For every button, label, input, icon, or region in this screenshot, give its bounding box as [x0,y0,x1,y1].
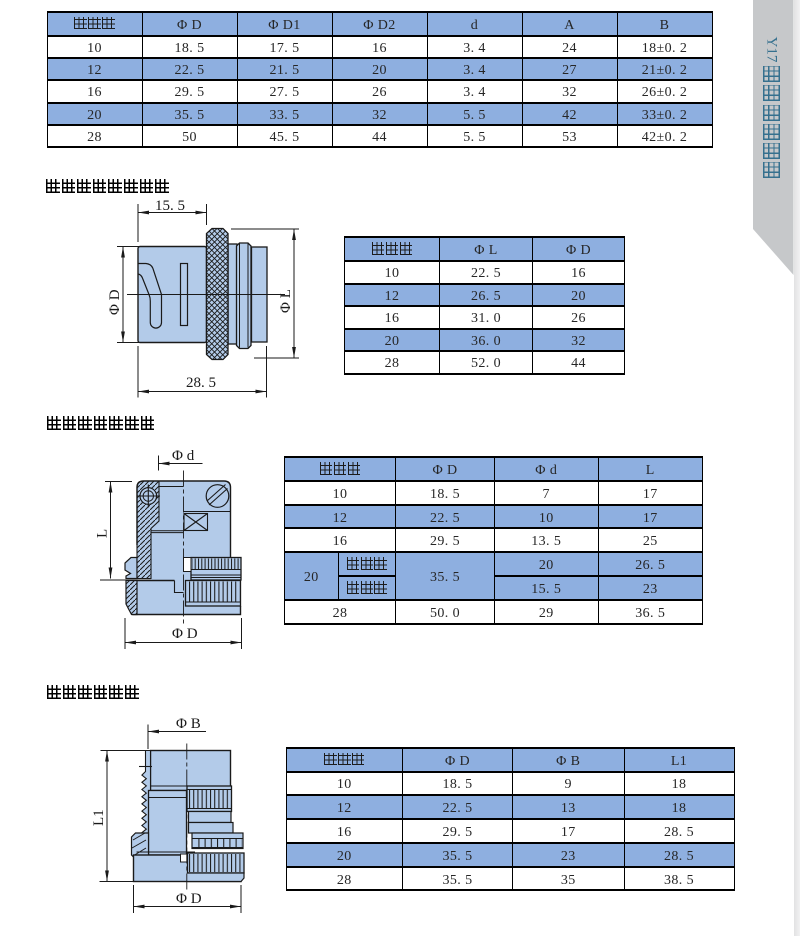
svg-text:Φ D: Φ D [176,891,202,907]
svg-text:Φ L: Φ L [278,289,294,313]
svg-text:Φ D: Φ D [107,289,123,315]
svg-text:28. 5: 28. 5 [186,375,216,391]
svg-text:Φ B: Φ B [176,716,201,732]
svg-text:15. 5: 15. 5 [155,198,185,214]
svg-text:Φ D: Φ D [172,626,198,642]
svg-text:Φ d: Φ d [172,448,195,464]
svg-text:L1: L1 [93,809,107,826]
svg-text:L: L [95,529,111,538]
